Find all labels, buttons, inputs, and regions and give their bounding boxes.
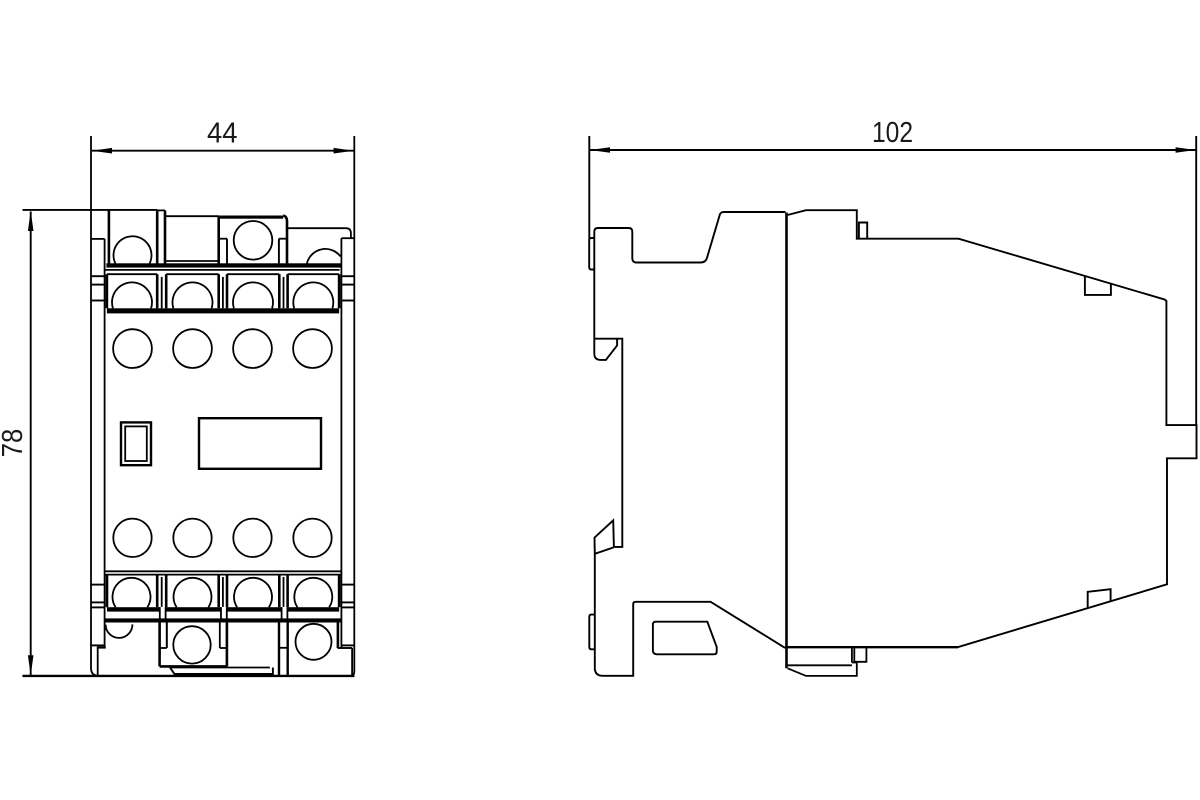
- svg-text:102: 102: [872, 117, 913, 149]
- svg-text:44: 44: [207, 118, 238, 150]
- svg-text:78: 78: [0, 429, 29, 458]
